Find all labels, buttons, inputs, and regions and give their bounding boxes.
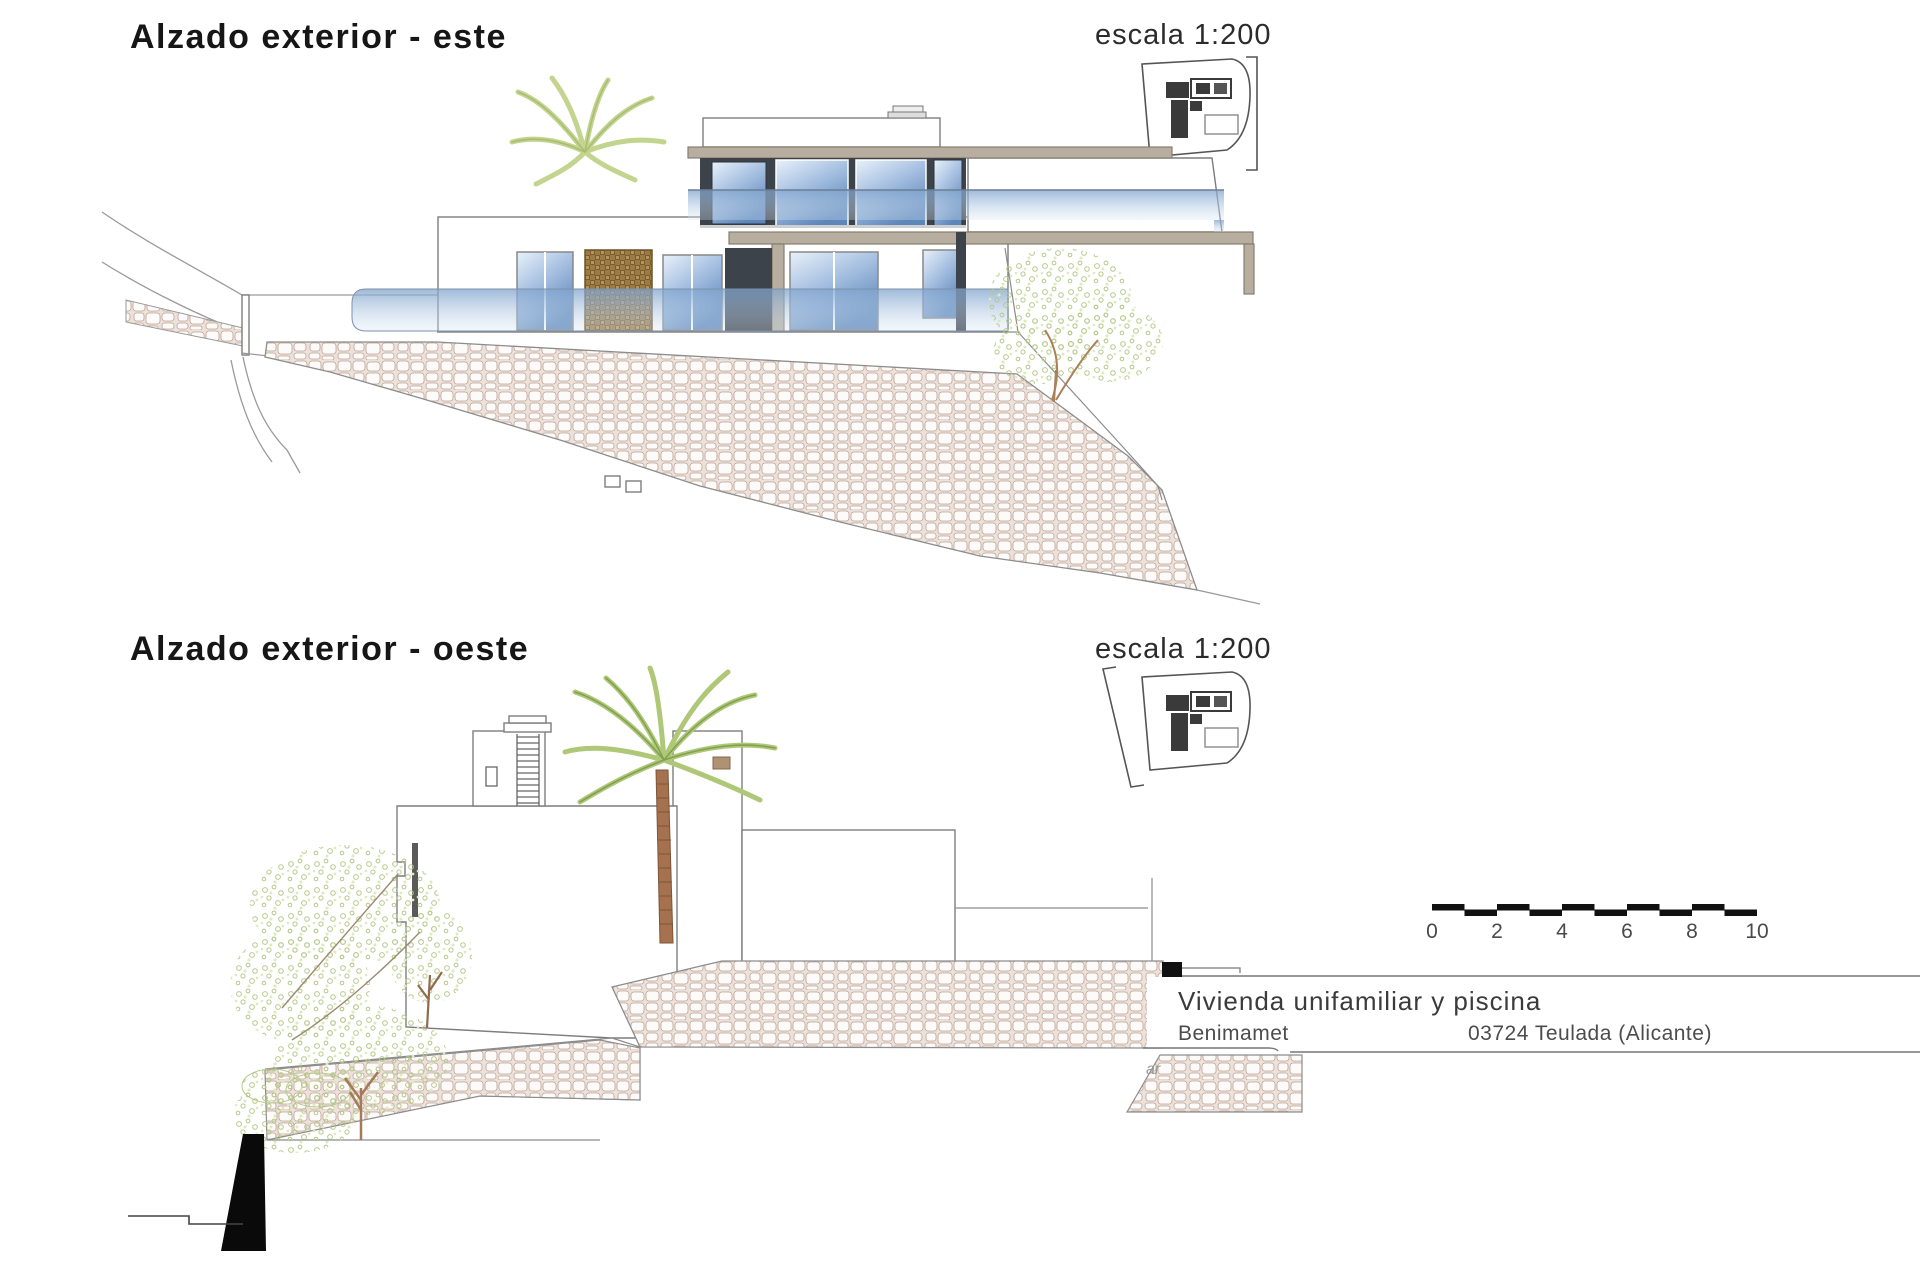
bracket-icon [1103,667,1144,787]
project-title: Vivienda unifamiliar y piscina [1178,986,1541,1016]
east-title: Alzado exterior - este [130,18,507,56]
roof-box [713,757,730,769]
scale-tick-label: 10 [1745,920,1768,943]
municipality: Benimamet [1178,1022,1289,1045]
postal-city: 03724 Teulada (Alicante) [1468,1022,1712,1045]
scale-tick-label: 8 [1686,920,1698,943]
ground-step-line [128,1216,243,1224]
west-scale-label: escala 1:200 [1095,633,1271,665]
architectural-sheet: Alzado exterior - este escala 1:200 [0,0,1920,1280]
drain-box [626,481,641,492]
scale-bar: 0 2 4 6 8 10 [1426,904,1769,943]
site-plan-icon-west [1103,667,1250,787]
upper-roof-slab [688,147,1172,158]
scale-tick-label: 6 [1621,920,1633,943]
west-title: Alzado exterior - oeste [130,630,529,668]
title-block: Vivienda unifamiliar y piscina Benimamet… [1127,962,1920,1112]
watermark-fragment: ar [1146,1061,1161,1078]
terrace-roof-slab [729,232,1253,244]
reference-marker [1162,962,1182,977]
palm-tree-east [512,78,664,184]
deciduous-tree-east [988,248,1163,402]
scale-tick-label: 2 [1491,920,1503,943]
glass-balustrade-lower [352,289,1008,331]
stair-tower [473,716,551,806]
chimney [888,106,926,118]
east-elevation-drawing: Alzado exterior - este escala 1:200 [102,18,1271,604]
drain-box [605,476,620,487]
east-scale-label: escala 1:200 [1095,19,1271,51]
stone-band-main [612,961,1163,1048]
scale-tick-label: 0 [1426,920,1438,943]
right-wing [742,830,955,965]
slab-end-leg [1244,244,1254,294]
scale-tick-label: 4 [1556,920,1568,943]
large-tree-west [230,845,472,1153]
black-section-wall [221,1134,266,1251]
upper-parapet [703,118,940,147]
west-elevation-drawing: Alzado exterior - oeste escala 1:200 [128,630,1271,1251]
